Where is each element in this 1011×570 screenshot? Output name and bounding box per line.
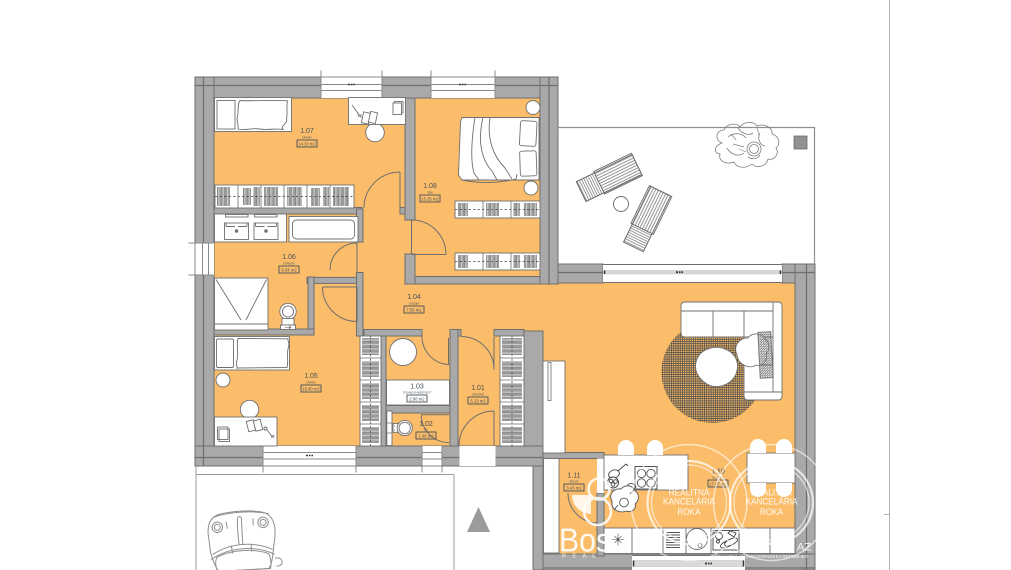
svg-text:KÚPEĽŇA: KÚPEĽŇA: [283, 263, 295, 266]
svg-text:1.02: 1.02: [419, 421, 433, 428]
svg-text:15.35 m2: 15.35 m2: [421, 197, 439, 202]
svg-text:KANCELÁRIA: KANCELÁRIA: [663, 497, 716, 508]
svg-text:SPÁLŇA: SPÁLŇA: [302, 137, 312, 140]
svg-text:TECHNICKÁ MIESTNOSŤ: TECHNICKÁ MIESTNOSŤ: [403, 392, 432, 395]
svg-text:ZÁDVERIE: ZÁDVERIE: [472, 394, 484, 397]
svg-text:1.04: 1.04: [407, 294, 421, 301]
svg-text:5.13 m2: 5.13 m2: [470, 399, 486, 404]
svg-text:IZBA: IZBA: [427, 192, 433, 195]
svg-text:AZ: AZ: [797, 542, 811, 554]
svg-text:WC: WC: [424, 429, 428, 432]
svg-text:CHODBA: CHODBA: [409, 303, 420, 306]
svg-text:ŠPAJZA: ŠPAJZA: [570, 481, 579, 484]
svg-text:15.80 m2: 15.80 m2: [302, 387, 320, 392]
svg-text:3.43 m2: 3.43 m2: [566, 486, 582, 491]
svg-text:ROKA: ROKA: [760, 507, 783, 517]
svg-text:1.05: 1.05: [304, 373, 318, 380]
svg-text:1.11: 1.11: [567, 473, 580, 480]
svg-text:1.01: 1.01: [471, 385, 485, 392]
svg-text:1.03: 1.03: [410, 384, 424, 391]
svg-text:R E A L: R E A L: [562, 554, 598, 560]
svg-text:SPÁLŇA: SPÁLŇA: [306, 382, 316, 385]
svg-text:1.46 m2: 1.46 m2: [418, 434, 434, 439]
svg-text:9.34 m2: 9.34 m2: [281, 268, 297, 273]
svg-text:REALITNÁ ÚNIA SLOVENSKEJ REPUB: REALITNÁ ÚNIA SLOVENSKEJ REPUBLIKY: [715, 553, 808, 559]
svg-text:ROKA: ROKA: [678, 507, 701, 517]
svg-text:KANCELÁRIA: KANCELÁRIA: [746, 497, 799, 508]
svg-text:1.07: 1.07: [300, 128, 314, 135]
svg-text:14.10 m2: 14.10 m2: [298, 142, 316, 147]
svg-text:1.08: 1.08: [423, 183, 437, 190]
svg-text:2.88 m2: 2.88 m2: [409, 397, 425, 402]
svg-text:1.06: 1.06: [282, 254, 296, 261]
svg-text:7.56 m2: 7.56 m2: [406, 308, 422, 313]
